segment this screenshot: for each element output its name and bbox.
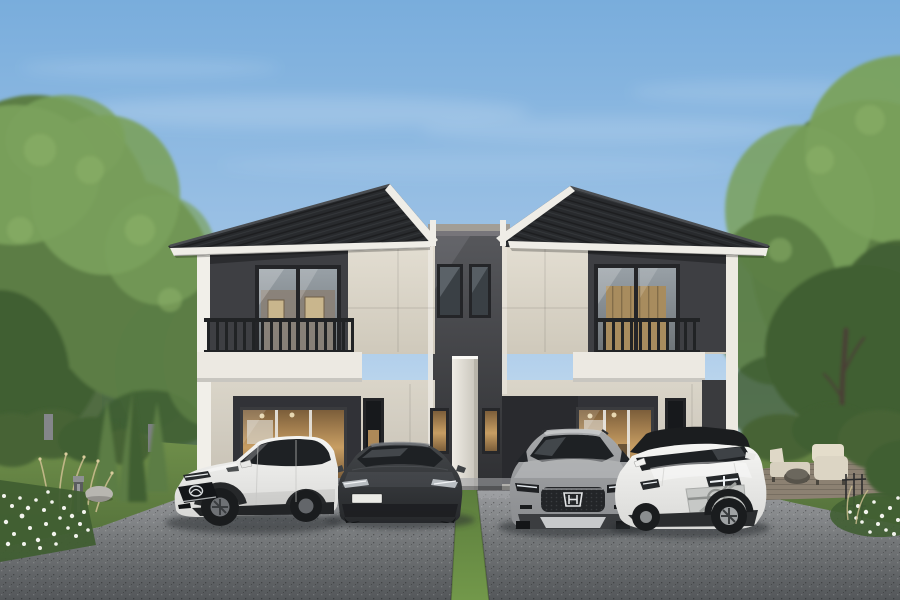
right-balcony-railing	[596, 318, 700, 354]
left-balcony-railing	[204, 318, 354, 354]
rear-wheel	[632, 503, 660, 531]
framed-picture	[268, 300, 284, 320]
license-plate	[352, 494, 382, 503]
rendering-canvas	[0, 0, 900, 600]
center-upper-window	[469, 264, 491, 318]
right-balcony-slab	[573, 352, 705, 382]
downspout	[500, 220, 506, 246]
skid-plate	[540, 517, 606, 528]
framed-picture	[305, 297, 324, 320]
sedan-lower-bumper	[342, 504, 458, 517]
downspout	[430, 220, 436, 246]
left-balcony-slab	[197, 352, 362, 382]
armchair	[812, 444, 848, 485]
entry-sidelight	[482, 408, 500, 454]
rear-wheel	[290, 490, 322, 522]
center-upper-window	[437, 264, 463, 318]
entry-sidelight	[430, 408, 449, 454]
